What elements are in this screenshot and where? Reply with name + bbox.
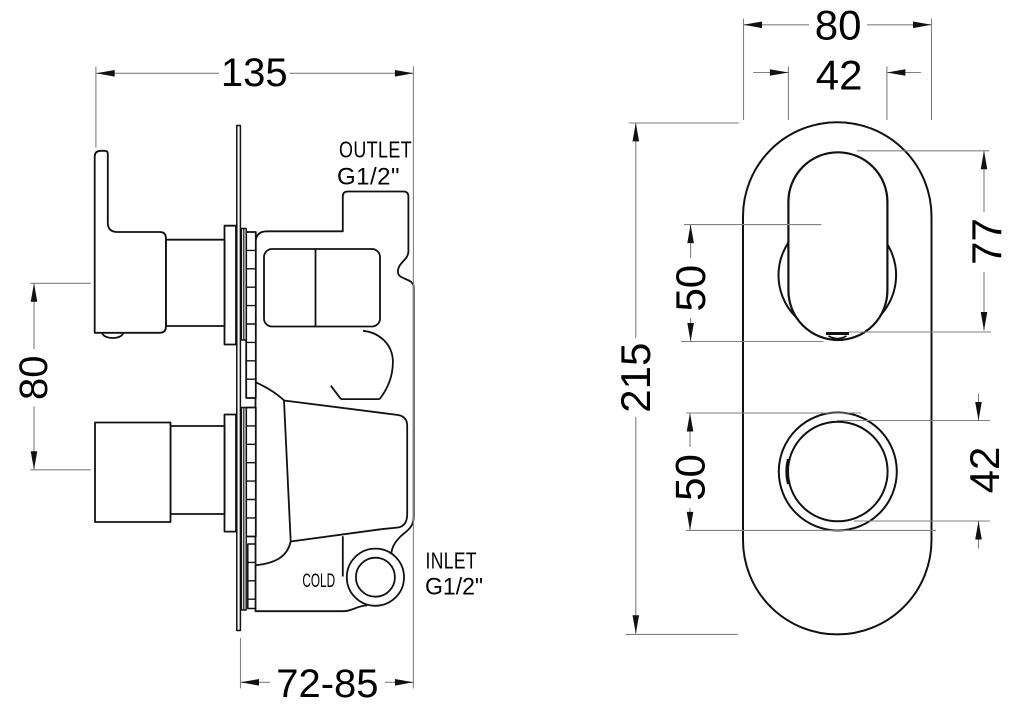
svg-text:80: 80: [12, 356, 56, 401]
svg-text:50: 50: [667, 454, 714, 501]
svg-text:G1/2": G1/2": [337, 164, 400, 191]
svg-text:INLET: INLET: [426, 549, 477, 574]
svg-text:50: 50: [667, 265, 714, 312]
svg-text:42: 42: [816, 52, 863, 99]
svg-text:OUTLET: OUTLET: [339, 137, 412, 163]
svg-text:135: 135: [221, 51, 288, 95]
svg-text:80: 80: [815, 1, 862, 48]
svg-text:72-85: 72-85: [276, 662, 378, 706]
svg-text:G1/2": G1/2": [425, 573, 483, 600]
svg-text:77: 77: [963, 218, 1010, 265]
svg-text:42: 42: [961, 447, 1008, 494]
svg-text:COLD: COLD: [302, 571, 335, 591]
svg-text:215: 215: [612, 343, 659, 413]
